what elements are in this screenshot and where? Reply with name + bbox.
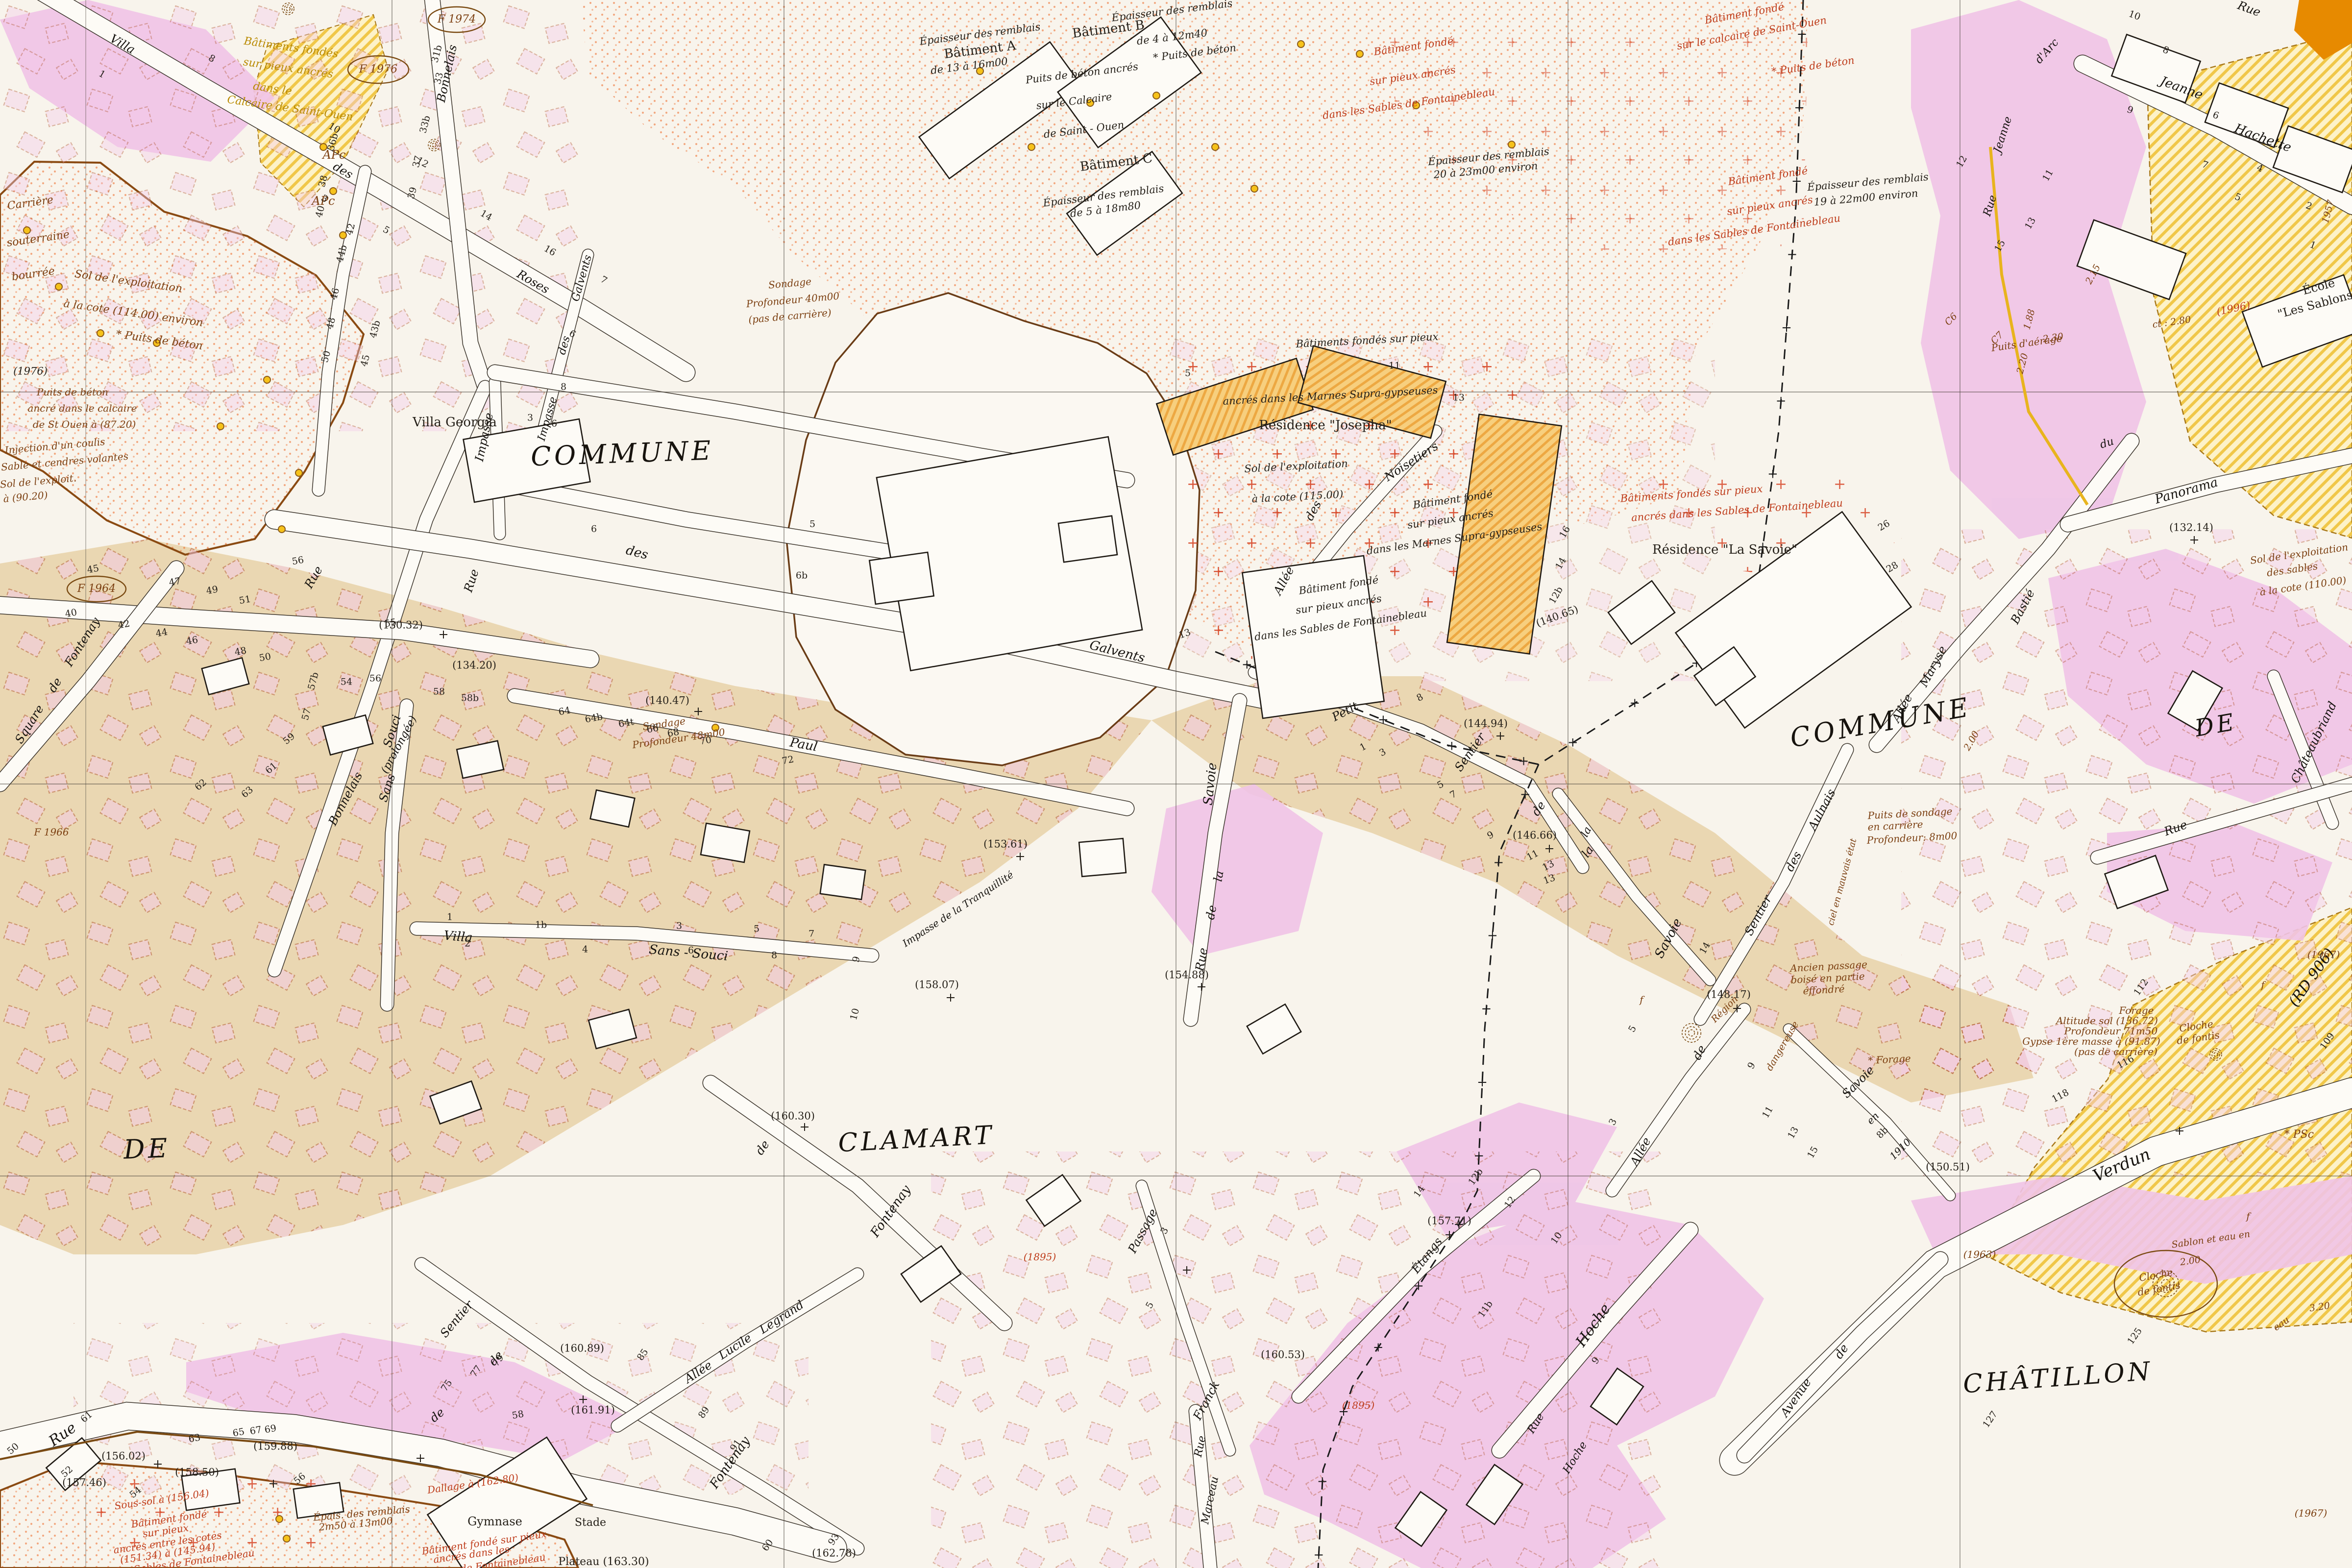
street-label: Jeanne [2158,74,2205,101]
geology-note: (1895) [1024,1252,1056,1262]
geology-note: * PSc [2284,1129,2314,1140]
geology-note: Sol de l'exploitation [2250,542,2349,565]
parcel-number: 65 [232,1427,245,1439]
geology-note: 1957 [2321,199,2336,224]
parcel-number: 70 [699,735,712,747]
elevation-label: (134.20) [452,661,496,671]
geology-note: dans les Marnes Supra-gypseuses [1366,521,1543,556]
parcel-number: 68 [666,728,680,739]
parcel-number: 1 [1358,742,1368,753]
geology-note: * Forage [1868,1053,1911,1066]
parcel-number: 48 [325,317,338,330]
parcel-number: 57 [301,708,313,721]
parcel-number: 43b [368,319,382,339]
parcel-number: 66 [646,724,659,735]
geology-note: (1895) [1342,1400,1375,1410]
parcel-number: 7 [1448,789,1458,800]
parcel-number: 6b [796,571,808,581]
geology-note: Injection d'un coulis [4,437,105,455]
geology-note: eau [2272,1315,2291,1333]
street-label: Savoie [1840,1064,1876,1100]
parcel-number: 5 [1145,1300,1156,1310]
parcel-number: 6 [551,419,557,429]
street-label: Panorama [2154,476,2219,506]
street-label: Avenue [1779,1376,1813,1419]
street-label: la [1212,870,1225,882]
parcel-number: 6 [688,946,694,955]
street-label: de [754,1138,772,1157]
street-label: Savoie [1653,916,1684,960]
parcel-number: 40 [315,205,327,219]
street-label: Sentier [438,1298,475,1340]
street-label: de [46,676,64,694]
parcel-number: 9 [1591,1356,1602,1366]
geology-note: Bâtiment fondé [1373,36,1454,57]
parcel-number: 3 [1608,1117,1619,1127]
parcel-number: 15 [1993,239,2008,253]
geology-note: ancré dans le calcaire [27,403,137,413]
place-label: Gymnase [467,1516,522,1527]
geology-note: en carrière [1867,819,1923,832]
parcel-number: 31b [430,44,444,64]
street-label: de [1690,1043,1708,1061]
geology-note: Carrière [7,195,54,212]
geology-note: (1963) [1963,1249,1996,1259]
parcel-number: 13 [1542,873,1556,886]
parcel-number: 16 [1558,525,1572,539]
street-label: Jeanne [1992,115,2014,154]
parcel-number: 89 [697,1405,711,1421]
parcel-number: 125 [2126,1326,2144,1347]
parcel-number: 59 [282,732,297,746]
geology-note: dangereuse [1765,1020,1801,1072]
geology-note: Sol de l'exploitation [74,269,183,295]
parcel-number: 6 [591,525,597,534]
street-label: Rue [303,564,325,590]
street-label: de [1204,904,1219,920]
elevation-label: (162.78) [812,1548,856,1559]
parcel-number: 61 [264,761,279,776]
parcel-number: 13 [1453,393,1465,403]
parcel-number: 3 [527,414,533,423]
street-label: de [1530,799,1548,818]
geology-note: Puits de béton [37,387,108,397]
street-label: Marceau [1200,1475,1221,1525]
parcel-number: 13 [1541,859,1556,873]
geology-note: boisé en partie [1790,971,1865,985]
geology-note: Bâtiments fondés [243,36,339,60]
elevation-label: (158.07) [915,980,959,990]
street-label: des [1303,499,1323,522]
commune-label: DE [2193,710,2238,740]
street-label: des [1784,850,1804,873]
street-label: Legrand [758,1298,806,1336]
parcel-number: 10 [2127,9,2141,22]
geology-note: sur pieux ancrés [1295,593,1382,615]
geology-note: 3.20 [2309,1301,2331,1314]
elevation-label: (160.30) [771,1111,815,1122]
geology-note: F 1974 [438,14,476,25]
geology-note: Bâtiment fondé [1412,489,1493,511]
geology-note: F 1964 [77,584,116,594]
geology-note: * Puits de béton [1152,43,1237,63]
geology-note: f [1640,995,1643,1004]
parcel-number: 67 [249,1425,262,1437]
parcel-number: 54 [341,678,352,687]
parcel-number: 51 [238,595,251,606]
parcel-number: 5 [1185,369,1191,378]
geology-note: éffondré [1803,984,1845,996]
geology-note: Sol de l'exploitation [1244,459,1348,474]
parcel-number: 56 [291,556,304,567]
elevation-label: (144.94) [1464,719,1508,729]
street-label: Square [13,703,46,746]
parcel-number: 33b [418,115,432,134]
parcel-number: 72 [781,755,794,766]
parcel-number: 47 [168,577,181,588]
parcel-number: 11b [1477,1299,1494,1320]
parcel-number: 56 [293,1471,308,1486]
parcel-number: 11 [1389,362,1400,371]
parcel-number: 8 [1415,692,1425,703]
parcel-number: 50 [258,652,271,663]
parcel-number: 28 [1885,561,1900,575]
geology-note: de St Ouen à (87.20) [33,419,136,429]
street-label: la [1580,844,1595,859]
geology-note: Gypse 1ère masse à (91.87) [2022,1036,2160,1046]
geology-note: Sol de l'exploit. [0,473,77,490]
parcel-number: 58 [511,1410,524,1421]
geology-note: Bâtiments fondés sur pieux [1620,484,1763,504]
parcel-number: 50 [320,350,333,364]
street-label: 1910 [1888,1137,1912,1161]
parcel-number: 69 [264,1424,277,1435]
parcel-number: 75 [440,1378,454,1394]
street-label: Fontenay [63,615,102,668]
parcel-number: 57b [307,671,320,691]
geology-note: ancrés dans les Marnes Supra-gypseuses [1223,385,1438,407]
parcel-number: 5 [2233,192,2242,203]
parcel-number: 8 [2161,45,2170,56]
parcel-number: 15 [1806,1145,1820,1160]
street-label: Noisetiers [1382,440,1440,483]
parcel-number: 13 [2024,216,2038,231]
parcel-number: 5 [1436,780,1445,790]
geology-note: Cloche [2138,1267,2174,1283]
geology-note: ancrés dans les Sables de Fontainebleau [1631,498,1843,523]
parcel-number: 4 [582,945,588,955]
geology-note: 2.00 [1962,730,1981,752]
parcel-number: 62 [194,778,209,792]
parcel-number: 5 [754,925,759,934]
street-label: Rue [47,1421,79,1449]
parcel-number: 61 [79,1410,95,1424]
street-label: Allée [683,1359,714,1385]
street-label: Rue [2236,0,2262,18]
place-label: Stade [575,1518,606,1528]
place-label: Résidence "Josepha" [1259,419,1392,432]
geology-note: sur le calcaire de Saint-Ouen [1676,15,1828,51]
street-label: Sentier [1742,893,1773,937]
geology-note: de Saint - Ouen [1043,120,1125,140]
geology-note: * Puits de béton [1771,55,1855,77]
street-label: Sans [377,772,397,803]
parcel-number: 56 [369,674,381,684]
parcel-number: 9 [1486,830,1495,841]
street-label: Rue [1194,947,1209,972]
parcel-number: 1 [2308,240,2317,251]
elevation-label: (157.46) [62,1478,106,1488]
elevation-label: (157.71) [1427,1216,1471,1226]
elevation-label: (159.88) [253,1442,297,1452]
parcel-number: 64 [558,706,571,717]
parcel-number: 9 [2126,105,2134,116]
street-label: Hoche [1574,1301,1614,1349]
geology-note: Sablon et eau en [2171,1229,2251,1249]
street-label: des [331,160,355,181]
geology-note: dans les Sables de Fontainebleau [1322,87,1495,121]
elevation-label: (148.17) [1707,990,1751,1000]
street-label: Fontenay [868,1183,913,1240]
street-label: la [1580,825,1594,839]
parcel-number: 11 [1525,849,1540,862]
street-label: Rue [462,568,481,594]
parcel-number: 6 [567,329,577,340]
parcel-number: 49 [205,585,219,596]
parcel-number: 1 [97,69,107,80]
geology-note: 2.20 [2015,352,2030,375]
street-label: de [428,1406,446,1424]
parcel-number: 8 [771,951,777,960]
parcel-number: 46 [329,287,342,301]
parcel-number: 9 [1746,1061,1758,1071]
parcel-number: 12b [1548,586,1565,606]
parcel-number: 63 [188,1433,201,1445]
parcel-number: 7 [2201,160,2209,171]
elevation-label: (160.53) [1261,1350,1305,1360]
geology-note: sur pieux ancrés [1369,65,1456,87]
street-label: Villa [108,32,137,56]
parcel-number: 109 [2319,1031,2336,1052]
parcel-number: 85 [636,1347,650,1363]
elevation-label: (150.51) [1926,1162,1970,1173]
parcel-number: 50 [6,1442,21,1456]
parcel-number: 6 [2211,110,2220,121]
elevation-label: (146.66) [1513,831,1557,841]
parcel-number: 58b [461,694,479,703]
geology-note: (1967) [2295,1508,2327,1518]
geology-note: à (90.20) [3,490,49,504]
parcel-number: 112 [2132,978,2150,998]
street-label: d'Arc [2033,37,2061,66]
geology-note: 2.15 [2084,263,2103,286]
geology-note: (1967) [2307,950,2340,959]
geology-note: ciel en mauvais état [1827,837,1859,926]
street-label: Hachette [2233,122,2293,154]
street-label: Sentier [1453,731,1488,774]
parcel-number: 13 [1177,628,1192,640]
street-label: Rue [1526,1412,1546,1436]
geology-note: 2.00 [2180,1255,2202,1268]
commune-label: CLAMART [837,1123,995,1156]
geology-note: dans le [252,81,293,98]
geology-note: 1.88 [2022,308,2036,331]
commune-label: COMMUNE [530,437,714,470]
geology-note: Puits de béton ancrés [1025,62,1139,86]
street-label: Hoche [1562,1440,1590,1476]
geology-note: à la cote (110.00) [2259,575,2347,597]
parcel-number: 14 [1698,941,1713,955]
place-label: Résidence "La Savoie" [1652,543,1797,556]
geology-note: de 13 à 16m00 [930,56,1008,76]
geology-note: Bâtiments fondés sur pieux [1296,332,1439,349]
parcel-number: 4 [2255,163,2264,174]
street-label: Étangs [1409,1235,1444,1275]
street-label: Rue [1982,194,1999,218]
geology-note: sur pieux ancrés [243,57,334,80]
label-layer: COMMUNEDECLAMARTCOMMUNEDECHÂTILLONVilla … [0,0,2352,1568]
geology-note: F 1976 [359,64,397,75]
parcel-number: 16 [542,244,557,258]
parcel-number: 45 [360,354,372,367]
geology-note: souterraine [6,229,71,249]
elevation-label: (156.02) [101,1451,146,1462]
geology-note: f [2246,1211,2250,1221]
parcel-number: 42 [345,222,357,236]
geology-note: * Puits de béton [115,329,203,352]
parcel-number: 127 [1982,1410,1999,1430]
street-label: Allée [1628,1135,1653,1167]
geology-note: à la cote (115.00) [1251,490,1344,505]
street-label: du [2099,436,2115,451]
parcel-number: 3 [1378,747,1388,758]
geology-note: C6 [1943,312,1959,327]
geology-note: de 4 à 12m40 [1136,28,1208,47]
street-label: Bastié [2009,588,2037,626]
parcel-number: 26 [1877,519,1891,533]
parcel-number: 13 [1787,1126,1801,1140]
geology-note: f [2261,980,2264,990]
parcel-number: 48 [234,646,247,658]
elevation-label: (140.65) [1535,604,1580,629]
parcel-number: 64t [618,717,635,729]
street-label: Savoie [1202,762,1219,806]
street-label: Roses [515,268,551,295]
geology-note: Calcaire de Saint-Ouen [226,95,354,123]
street-label: Galvents [570,254,594,303]
parcel-number: 60 [760,1538,775,1553]
commune-label: COMMUNE [1788,694,1973,752]
commune-label: DE [123,1135,171,1163]
parcel-number: 2 [2304,201,2313,212]
geology-note: bourrée [11,266,56,283]
geology-note: dans les Sables de Fontainebleau [1667,213,1841,247]
parcel-number: 12 [1503,1195,1517,1210]
parcel-number: 14 [1412,1184,1426,1200]
street-label: Petit [1330,700,1360,723]
street-label: Galvents [1088,638,1146,664]
street-label: Passage [1126,1207,1159,1255]
street-label: Rue [2162,819,2188,838]
geology-note: Épaisseur des remblais [1111,0,1233,24]
parcel-number: 11 [1761,1105,1775,1120]
geology-note: Bâtiment fondé [1704,1,1785,25]
geology-note: (pas de carrière) [2074,1047,2157,1056]
parcel-number: 1b [535,921,547,930]
parcel-number: 38 [318,174,330,188]
parcel-number: 11 [2041,168,2056,183]
parcel-number: 8 [207,53,217,65]
place-label: Bâtiment C [1079,152,1153,173]
parcel-number: 39 [407,186,419,200]
geology-note: à la cote (114.00) environ [63,298,204,329]
parcel-number: 63 [240,785,255,800]
geology-note: Puits de sondage [1867,806,1953,820]
geology-note: Forage [2119,1005,2154,1015]
geology-note: Bâtiment fondé [1727,166,1808,187]
parcel-number: 7 [599,275,609,286]
parcel-number: 46 [185,636,198,647]
elevation-label: (161.91) [571,1405,615,1416]
elevation-label: (153.61) [983,839,1028,850]
parcel-number: 3 [676,922,682,931]
parcel-number: 10 [1549,1231,1564,1246]
parcel-number: 1 [447,913,453,922]
parcel-number: 44 [155,628,168,639]
elevation-label: (132.14) [2169,523,2213,533]
parcel-number: 5 [809,520,815,529]
street-label: de [1833,1342,1851,1361]
parcel-number: 12b [1467,1167,1485,1187]
street-label: Rue [1193,1435,1208,1458]
street-label: Aulnais [1806,787,1837,832]
parcel-number: 8b [1875,1126,1890,1141]
geological-cadastral-map: + + [0,0,2352,1568]
parcel-number: 7 [808,930,814,939]
geology-note: (1976) [13,367,48,377]
geology-note: (1996) [2216,300,2252,317]
parcel-number: 93 [827,1532,841,1547]
geology-note: dans les Sables de Fontainebleau [1254,608,1427,642]
geology-note: Profondeur 71m50 [2064,1026,2158,1036]
street-label: Impasse de la Tranquillité [901,869,1015,948]
parcel-number: 64b [584,712,603,724]
street-label: Paul [789,736,819,753]
parcel-number: 5 [1627,1024,1639,1034]
parcel-number: 2 [465,939,470,949]
geology-note: des sables [2266,561,2319,578]
parcel-number: 55 [384,618,397,629]
place-label: Bâtiment B [1072,19,1145,40]
street-label: Lucile [716,1332,753,1362]
geology-note: ct : 2.80 [2152,315,2192,330]
geology-note: sur le Calcaire [1035,92,1112,111]
parcel-number: 58 [433,687,445,697]
geology-note: (pas de carrière) [748,308,832,325]
parcel-number: 42 [117,619,130,631]
parcel-number: 12 [1955,154,1969,169]
parcel-number: 14 [479,209,493,223]
street-label: Bonnelais [326,770,364,828]
geology-note: Profondeur 40m00 [746,291,840,309]
geology-note: Dallage à (162.80) [427,1472,519,1495]
place-label: Plateau (163.30) [558,1557,649,1568]
street-label: Maryse [1917,644,1949,688]
commune-label: CHÂTILLON [1962,1359,2154,1397]
elevation-label: (160.89) [560,1344,604,1354]
street-label: Châteaubriand [2289,700,2338,785]
street-label: des [625,544,649,562]
